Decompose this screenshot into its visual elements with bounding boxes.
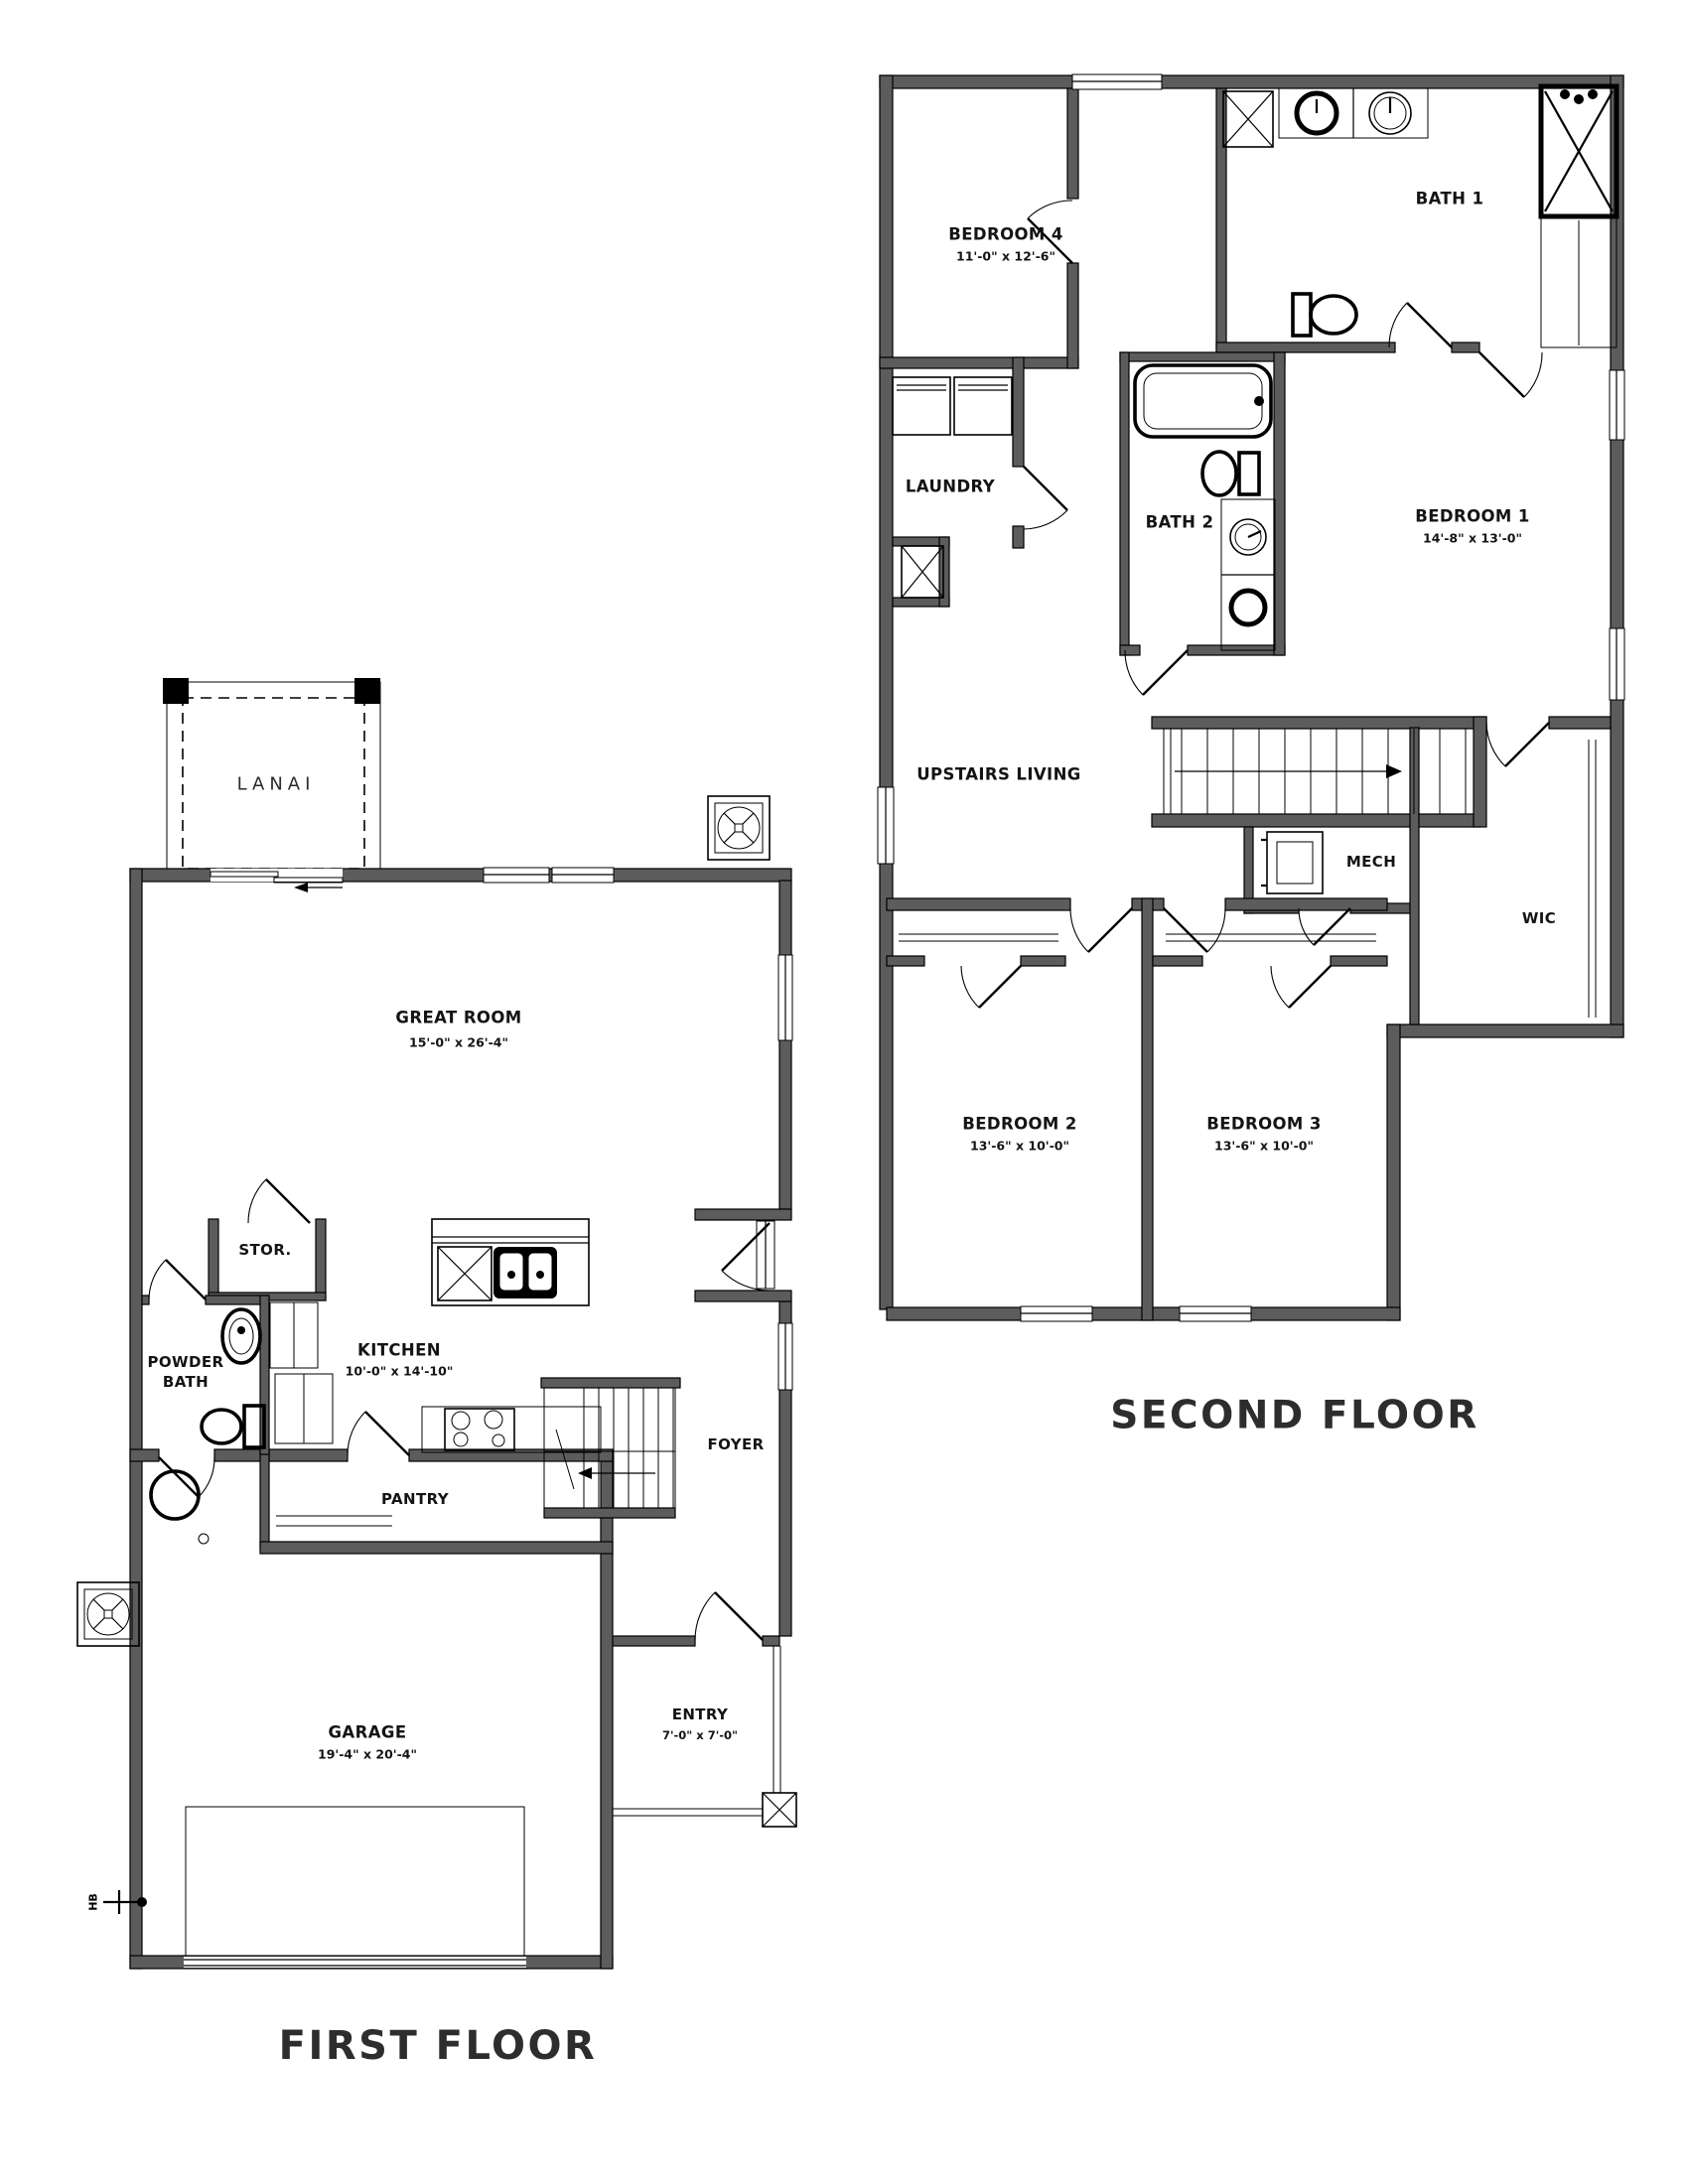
porch-column-icon [763,1793,796,1827]
room-label-pantry: PANTRY [381,1490,449,1508]
room-dims-bedroom-1: 14'-8" x 13'-0" [1423,531,1522,546]
wic-shelf [1589,740,1596,1018]
water-heater-icon [1261,832,1323,893]
room-label-garage: GARAGE [328,1723,406,1742]
toilet-icon [1293,294,1356,336]
room-dims-entry: 7'-0" x 7'-0" [662,1728,738,1742]
room-label-powder-bath: POWDER BATH [130,1352,241,1393]
water-heater-icon [151,1471,209,1544]
room-label-great-room: GREAT ROOM [395,1009,521,1027]
floorplan-drawing [0,0,1688,2184]
pantry-shelf [276,1516,392,1526]
room-dims-bedroom-3: 13'-6" x 10'-0" [1214,1139,1314,1154]
slider-direction-arrow-icon [294,883,308,892]
shower-icon [1541,86,1617,216]
washer-icon [893,377,950,435]
floorplan-sheet: BEDROOM 4 11'-0" x 12'-6" BATH 1 LAUNDRY… [0,0,1688,2184]
vanity-sinks-icon [1221,499,1275,650]
stair-direction-arrow-icon [1386,764,1402,778]
dryer-icon [954,377,1012,435]
room-label-bedroom-3: BEDROOM 3 [1206,1115,1322,1134]
room-dims-bedroom-2: 13'-6" x 10'-0" [970,1139,1069,1154]
double-vanity-icon [1279,88,1428,138]
bath1-closet-icon [1223,91,1273,147]
stair-direction-arrow-icon [578,1467,592,1479]
room-label-bedroom-2: BEDROOM 2 [962,1115,1077,1134]
linen-closet-icon [902,546,943,598]
room-label-stor: STOR. [238,1241,291,1259]
kitchen-island [432,1219,589,1305]
room-label-mech: MECH [1346,853,1396,871]
interior-walls [880,88,1611,1320]
room-dims-kitchen: 10'-0" x 14'-10" [346,1364,454,1379]
kitchen-sink-icon [493,1247,557,1298]
exterior-walls [130,869,791,1969]
room-label-upstairs-living: UPSTAIRS LIVING [916,765,1081,784]
room-label-foyer: FOYER [707,1435,764,1453]
cabinet-fridge [270,1302,333,1443]
second-floor-title: SECOND FLOOR [1110,1394,1479,1438]
room-dims-great-room: 15'-0" x 26'-4" [409,1035,508,1050]
garage-door [184,1807,526,1968]
toilet-icon [1202,452,1259,495]
range-counter [422,1407,601,1452]
room-label-bath-1: BATH 1 [1416,190,1484,208]
room-label-entry: ENTRY [672,1706,729,1723]
room-dims-garage: 19'-4" x 20'-4" [318,1747,417,1762]
room-label-kitchen: KITCHEN [357,1341,441,1360]
ceiling-fan-icon [708,796,770,860]
hose-bib-label: HB [87,1893,100,1911]
room-label-wic: WIC [1522,909,1556,927]
room-dims-bedroom-4: 11'-0" x 12'-6" [956,249,1055,264]
windows [211,868,792,1390]
bedroom1-closet [1541,216,1617,347]
room-label-lanai: LANAI [237,774,316,795]
closet-shelves [899,934,1376,941]
stove-icon [445,1409,514,1450]
door-swings [961,201,1549,1008]
bathtub-icon [1135,365,1271,437]
first-floor-plan [103,678,796,1969]
room-label-bedroom-4: BEDROOM 4 [948,225,1063,244]
room-label-laundry: LAUNDRY [906,478,995,496]
room-label-bedroom-1: BEDROOM 1 [1415,507,1530,526]
room-label-bath-2: BATH 2 [1146,513,1214,532]
stairs-second-floor [1164,729,1466,814]
first-floor-title: FIRST FLOOR [279,2023,598,2069]
dishwasher-icon [438,1247,492,1300]
toilet-icon [202,1406,264,1447]
